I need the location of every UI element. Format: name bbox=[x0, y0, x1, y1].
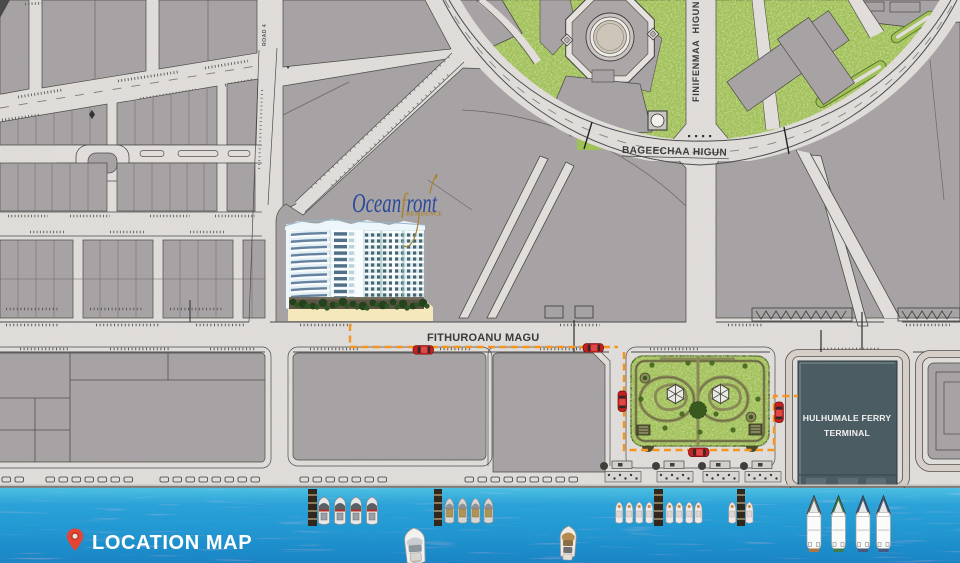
svg-text:RESIDENCE: RESIDENCE bbox=[406, 212, 443, 218]
svg-text:FITHUROANU MAGU: FITHUROANU MAGU bbox=[427, 332, 539, 344]
svg-text:FINIFENMAA HIGUN: FINIFENMAA HIGUN bbox=[691, 1, 701, 102]
svg-text:TERMINAL: TERMINAL bbox=[824, 428, 870, 438]
svg-text:ROAD 4: ROAD 4 bbox=[262, 24, 268, 46]
svg-text:LOCATION MAP: LOCATION MAP bbox=[92, 532, 252, 554]
svg-text:HULHUMALE FERRY: HULHUMALE FERRY bbox=[803, 413, 892, 423]
